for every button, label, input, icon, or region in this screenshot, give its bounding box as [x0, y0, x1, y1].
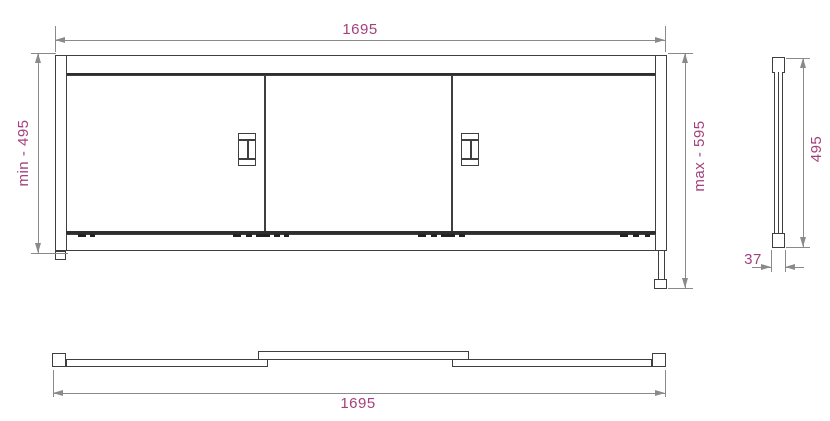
right-adjustable-leg [658, 251, 665, 279]
handle-detail [247, 141, 249, 158]
dimension-label-side-depth: 37 [740, 252, 766, 268]
extension-line [665, 26, 666, 52]
plan-left-bar [66, 359, 268, 367]
arrowhead [682, 278, 688, 288]
dimension-label-min-height: min - 495 [16, 111, 32, 195]
roller-mark [633, 234, 639, 237]
dimension-line [55, 40, 665, 41]
arrowhead [785, 264, 795, 270]
dimension-line [53, 393, 665, 394]
roller-mark [441, 234, 455, 237]
door-divider-right [451, 76, 453, 232]
dimension-label-front-width: 1695 [330, 22, 390, 38]
door-handle-left [238, 133, 256, 166]
dimension-label-max-height: max - 595 [692, 111, 708, 201]
arrowhead [55, 37, 65, 43]
dimension-line [38, 53, 39, 253]
left-post [55, 55, 67, 251]
right-foot [654, 279, 667, 289]
extension-line [31, 253, 68, 254]
side-bottom-cap [772, 233, 785, 248]
door-divider-left [264, 76, 266, 232]
side-profile-inner-line [778, 72, 779, 234]
roller-mark [233, 234, 241, 237]
roller-mark [256, 234, 270, 237]
handle-detail [470, 141, 472, 158]
plan-left-cap [52, 353, 66, 367]
roller-mark [620, 234, 628, 237]
arrowhead [800, 58, 806, 68]
dimension-line [803, 58, 804, 247]
extension-line [786, 247, 810, 248]
side-top-cap [772, 57, 785, 73]
roller-mark [90, 234, 95, 237]
extension-line [668, 53, 693, 54]
side-profile [774, 72, 783, 234]
arrowhead [800, 237, 806, 247]
extension-line [665, 370, 666, 397]
arrowhead [655, 390, 665, 396]
plan-middle-bar [258, 351, 469, 360]
plan-right-cap [652, 353, 666, 367]
roller-mark [78, 234, 86, 237]
bottom-rail [66, 234, 656, 251]
extension-line [786, 58, 810, 59]
roller-mark [431, 234, 437, 237]
door-area [66, 75, 656, 234]
right-post [655, 55, 667, 251]
roller-mark [645, 234, 650, 237]
roller-mark [459, 234, 465, 237]
door-handle-right [461, 133, 479, 166]
arrowhead [35, 243, 41, 253]
dimension-label-plan-width: 1695 [328, 396, 388, 412]
roller-mark [418, 234, 426, 237]
arrowhead [655, 37, 665, 43]
drawing-canvas: 1695 min - 495 max - 595 495 [0, 0, 830, 421]
handle-detail [239, 158, 255, 160]
dimension-line [685, 53, 686, 288]
dimension-label-side-height: 495 [809, 129, 825, 169]
arrowhead [35, 53, 41, 63]
plan-right-bar [452, 359, 652, 367]
arrowhead [682, 53, 688, 63]
arrowhead [53, 390, 63, 396]
handle-detail [462, 158, 478, 160]
roller-mark [284, 234, 289, 237]
roller-mark [246, 234, 252, 237]
roller-mark [274, 234, 280, 237]
extension-line [771, 250, 772, 272]
extension-line [668, 288, 693, 289]
